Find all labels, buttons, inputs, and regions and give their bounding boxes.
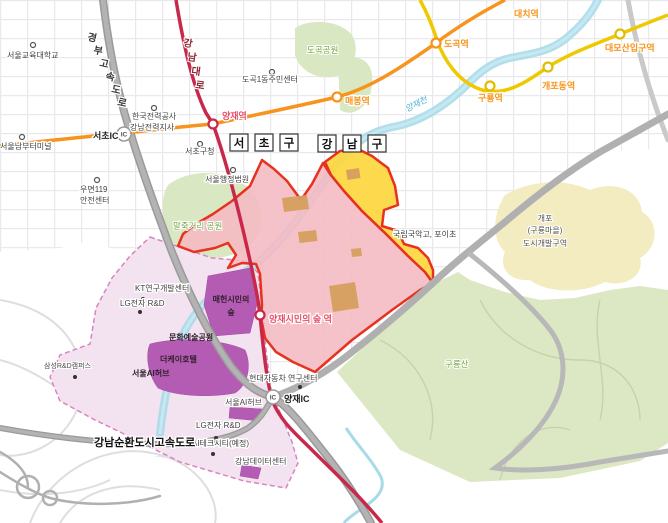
label-station-daemosan: 대모산입구역 bbox=[605, 42, 655, 53]
label-gangnam-beltway: 강남순환도시고속도로 bbox=[94, 435, 195, 449]
label-station-dogok: 도곡역 bbox=[444, 38, 469, 49]
gaepo-dev-area bbox=[495, 182, 654, 290]
poi-dot bbox=[298, 385, 302, 389]
district-gangnam-char-0: 강 bbox=[322, 137, 333, 151]
label-maljukgeori-park: 말죽거리 공원 bbox=[173, 221, 222, 231]
district-gangnam-char-2: 구 bbox=[372, 138, 383, 151]
label-station-guryong: 구룡역 bbox=[478, 92, 503, 103]
label-umyeon119-line1: 우면119 bbox=[80, 184, 108, 194]
label-gangnam-datacenter: 강남데이터센터 bbox=[235, 456, 287, 466]
poi-dot bbox=[31, 43, 36, 48]
label-admin-court: 서울행정법원 bbox=[205, 174, 249, 184]
label-gugak-school: 국립국악고, 포이초 bbox=[393, 229, 456, 239]
map-canvas[interactable]: ICIC 서울교육대학교도곡1동주민센터한국전력공사강남전력지사서울남부터미널서… bbox=[0, 0, 668, 523]
poi-dot bbox=[138, 310, 142, 314]
label-gangnamdaero-4: 로 bbox=[195, 79, 206, 92]
poi-dot bbox=[270, 70, 275, 75]
station-yangjae bbox=[209, 120, 218, 129]
label-gangnamdaero-3: 대 bbox=[191, 64, 202, 78]
label-seocho-gu-office: 서초구청 bbox=[185, 147, 214, 156]
station-gaepodong bbox=[544, 63, 553, 72]
label-seoul-ai-hub-1: 서울AI허브 bbox=[132, 368, 170, 378]
district-seocho-char-2: 구 bbox=[284, 137, 295, 150]
poi-dot bbox=[152, 106, 157, 111]
label-umyeon119-line2: 안전센터 bbox=[80, 195, 109, 205]
label-lg-rnd-2: LG전자 R&D bbox=[196, 420, 241, 430]
label-maeheon-forest-line1: 매헌시민의 bbox=[213, 294, 250, 304]
district-gangnam-char-1: 남 bbox=[347, 138, 358, 151]
label-station-gaepodong: 개포동역 bbox=[542, 80, 575, 91]
label-nambu-terminal: 서울남부터미널 bbox=[0, 142, 52, 151]
district-seocho-char-1: 초 bbox=[259, 137, 270, 150]
station-guryong bbox=[486, 82, 495, 91]
district-seocho-char-0: 서 bbox=[234, 136, 245, 150]
label-thek-hotel: 더케이호텔 bbox=[160, 354, 197, 364]
station-dogok bbox=[432, 39, 441, 48]
label-dogok-park: 도곡공원 bbox=[307, 45, 338, 55]
label-kt-rnd: KT연구개발센터 bbox=[135, 283, 189, 293]
label-station-maebong: 매봉역 bbox=[345, 95, 370, 106]
label-gaepo-dev-line2: (구룡마을) bbox=[528, 226, 563, 235]
poi-dot bbox=[231, 168, 236, 173]
label-ai-tech-city: AI테크시티(예정) bbox=[192, 438, 249, 448]
label-samsung-rnd: 삼성R&D캠퍼스 bbox=[44, 361, 92, 370]
label-maeheon-forest-line2: 숲 bbox=[227, 307, 235, 317]
poi-dot bbox=[73, 375, 77, 379]
label-seocho-ic: 서초IC bbox=[93, 130, 119, 141]
label-seoul-ai-hub-2: 서울AI허브 bbox=[225, 398, 262, 407]
map-svg: ICIC 서울교육대학교도곡1동주민센터한국전력공사강남전력지사서울남부터미널서… bbox=[0, 0, 668, 523]
label-kepco-line1: 한국전력공사 bbox=[132, 111, 177, 121]
yangjae-ic-badge-text: IC bbox=[270, 395, 277, 402]
label-station-daechi: 대치역 bbox=[514, 8, 539, 19]
label-culture-arts-park: 문화예술공원 bbox=[169, 332, 213, 342]
label-gaepo-dev-line1: 개포 bbox=[538, 213, 553, 223]
station-yangjae-citizens-forest bbox=[256, 311, 265, 320]
station-daemosan-ipgu bbox=[616, 30, 625, 39]
label-kepco-line2: 강남전력지사 bbox=[130, 122, 175, 132]
label-lg-rnd-1: LG전자 R&D bbox=[120, 298, 165, 308]
label-dogok1-center: 도곡1동주민센터 bbox=[242, 74, 298, 84]
poi-dot bbox=[95, 178, 100, 183]
seocho-ic-badge-text: IC bbox=[121, 132, 128, 139]
label-yangjae-ic: 양재IC bbox=[284, 393, 310, 404]
label-guryongsan: 구룡산 bbox=[445, 359, 469, 369]
label-seoul-edu-univ: 서울교육대학교 bbox=[7, 50, 59, 60]
station-maebong bbox=[333, 93, 342, 102]
label-hyundai-rnd: 현대자동차 연구센터 bbox=[249, 373, 317, 383]
poi-dot bbox=[211, 452, 215, 456]
poi-dot bbox=[198, 142, 203, 147]
poi-dot bbox=[20, 135, 25, 140]
label-station-yangjae: 양재역 bbox=[222, 110, 247, 121]
label-gaepo-dev-line3: 도시개발구역 bbox=[523, 238, 567, 248]
label-station-ycf: 양재시민의 숲 역 bbox=[269, 313, 332, 324]
